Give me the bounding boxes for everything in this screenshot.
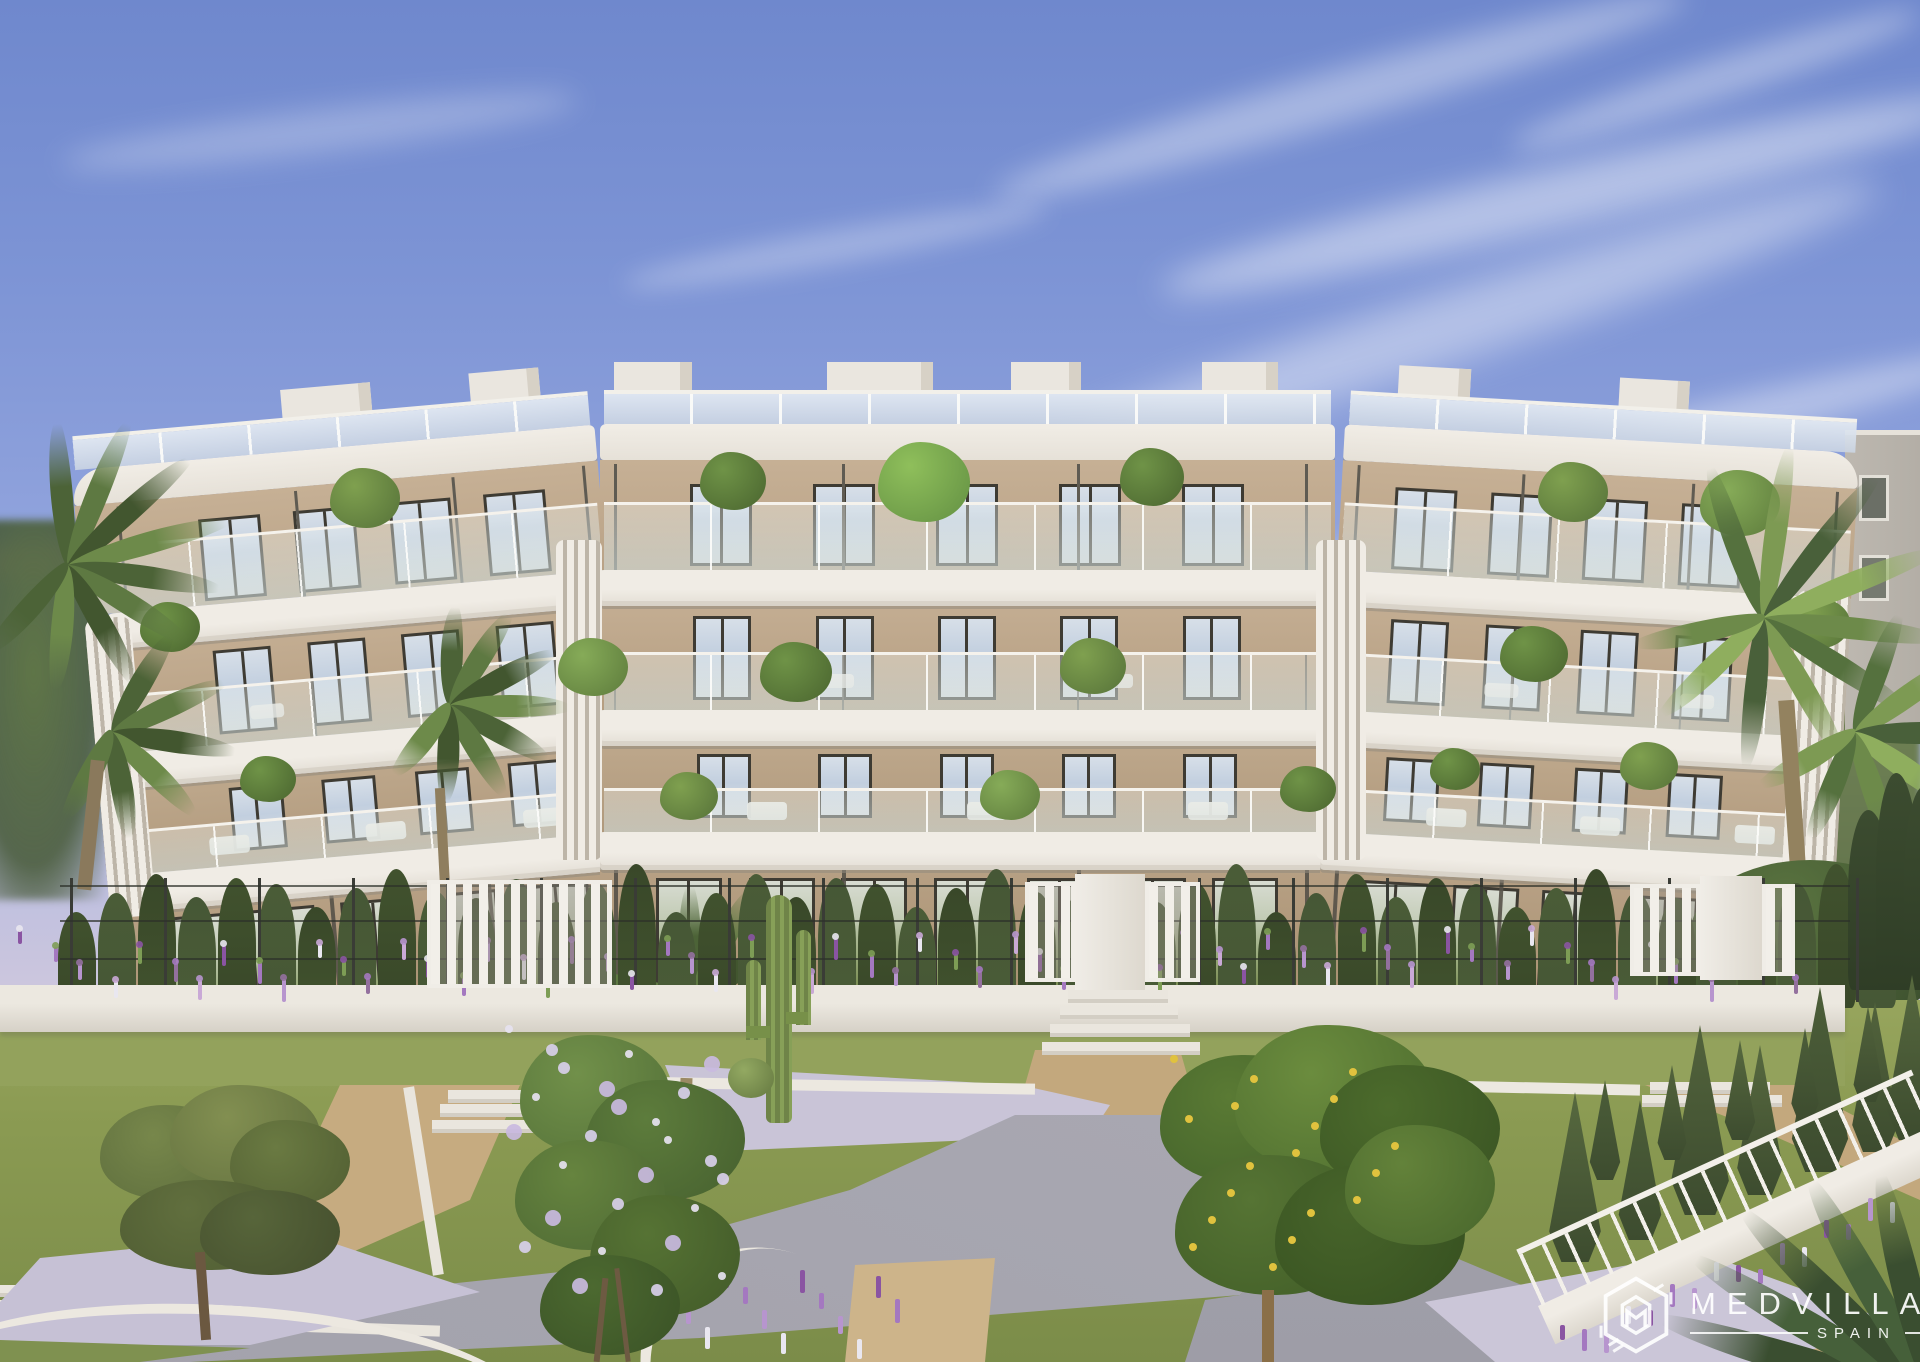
balcony-plant: [660, 772, 718, 820]
flower-cluster: [834, 938, 838, 960]
lilac-flowers: [558, 1062, 570, 1074]
lilac-flowers: [678, 1087, 690, 1099]
lavender: [705, 1327, 710, 1349]
flower-cluster: [138, 946, 142, 964]
flower-cluster: [870, 955, 874, 978]
flower-cluster: [1302, 950, 1306, 968]
lavender: [781, 1333, 786, 1354]
fence-post: [1386, 878, 1389, 1002]
lilac-flowers: [585, 1130, 597, 1142]
flower-cluster: [1408, 961, 1415, 968]
balcony-band: [600, 570, 1335, 606]
lilac-flowers: [717, 1173, 729, 1185]
lilac-flowers: [506, 1124, 522, 1140]
lavender: [819, 1293, 824, 1309]
fence-post: [728, 878, 731, 1002]
lawn: [0, 1030, 1845, 1086]
flower-cluster: [892, 967, 899, 974]
gate-steps: [1068, 990, 1168, 1003]
fence-post: [70, 878, 73, 1002]
flower-cluster: [1468, 943, 1475, 950]
louver-panel: [1316, 540, 1366, 860]
flower-cluster: [1530, 930, 1534, 946]
flower-cluster: [714, 974, 718, 992]
cloud: [59, 78, 580, 183]
lemon-fruit: [1307, 1209, 1315, 1217]
lavender: [838, 1316, 843, 1334]
flower-cluster: [1360, 927, 1367, 934]
entrance-gate: [1025, 882, 1075, 982]
flower-cluster: [978, 971, 982, 988]
flower-cluster: [748, 934, 755, 941]
lemon-tree-trunk: [1262, 1290, 1274, 1362]
lavender: [1560, 1325, 1565, 1340]
lilac-flowers: [691, 1204, 699, 1212]
fence-post: [352, 878, 355, 1002]
roof-terrace-glass: [604, 390, 1331, 424]
balcony-plant: [1538, 462, 1608, 522]
flower-cluster: [52, 942, 59, 949]
lavender: [743, 1287, 748, 1304]
lilac-flowers: [638, 1167, 654, 1183]
flower-cluster: [918, 937, 922, 952]
flower-cluster: [976, 966, 983, 973]
lilac-flowers: [705, 1155, 717, 1167]
flower-cluster: [712, 969, 719, 976]
flower-cluster: [1326, 967, 1330, 986]
flower-cluster: [1444, 926, 1451, 933]
flower-cluster: [136, 941, 143, 948]
balcony-plant: [558, 638, 628, 696]
flower-cluster: [112, 976, 119, 983]
lilac-flowers: [505, 1025, 513, 1033]
balcony-plant: [1500, 626, 1568, 682]
flower-cluster: [1014, 936, 1018, 954]
flower-cluster: [280, 974, 287, 981]
balcony-plant: [1280, 766, 1336, 812]
glass-balustrade: [604, 652, 1331, 712]
louver-panel: [556, 540, 602, 860]
flower-cluster: [894, 972, 898, 986]
lavender: [1582, 1329, 1587, 1351]
flower-cluster: [916, 932, 923, 939]
fence-post: [164, 878, 167, 1002]
flower-cluster: [1012, 931, 1019, 938]
flower-cluster: [402, 943, 406, 960]
flower-cluster: [400, 938, 407, 945]
flower-cluster: [220, 940, 227, 947]
flower-cluster: [366, 978, 370, 994]
flower-cluster: [630, 975, 634, 990]
lilac-flowers: [704, 1056, 720, 1072]
cactus-ball: [728, 1058, 774, 1098]
lavender: [857, 1339, 862, 1359]
flower-cluster: [342, 961, 346, 976]
brand-name: MEDVILLA: [1690, 1288, 1920, 1321]
flower-cluster: [222, 945, 226, 966]
gate-steps: [1042, 1042, 1200, 1055]
brand-region: SPAIN: [1817, 1325, 1896, 1342]
lavender: [800, 1270, 805, 1293]
flower-cluster: [952, 949, 959, 956]
lilac-flowers: [652, 1118, 660, 1126]
fence-post: [1292, 878, 1295, 1002]
cactus-arm: [796, 930, 811, 1025]
flower-cluster: [196, 975, 203, 982]
balcony-plant: [240, 756, 296, 802]
lavender: [895, 1299, 900, 1323]
flower-cluster: [256, 957, 263, 964]
flower-cluster: [1216, 946, 1223, 953]
lilac-flowers: [664, 1136, 672, 1144]
cactus-arm: [786, 1012, 808, 1024]
watermark-text: MEDVILLA SPAIN: [1690, 1288, 1920, 1342]
entrance-gate: [1145, 882, 1200, 982]
flower-cluster: [78, 964, 82, 980]
lemon-fruit: [1246, 1162, 1254, 1170]
lilac-flowers: [598, 1247, 606, 1255]
lemon-fruit: [1189, 1243, 1197, 1251]
gate-steps: [1050, 1024, 1190, 1037]
lemon-fruit: [1349, 1068, 1357, 1076]
lilac-flowers: [665, 1235, 681, 1251]
flower-cluster: [114, 981, 118, 998]
flower-cluster: [1614, 981, 1618, 1000]
balcony-band: [600, 832, 1335, 870]
gate-pillar: [1075, 874, 1145, 996]
lavender: [1868, 1198, 1873, 1221]
fence-rail: [60, 885, 1850, 887]
planter-wall: [0, 985, 1845, 1032]
flower-cluster: [1240, 963, 1247, 970]
flower-cluster: [688, 952, 695, 959]
flower-cluster: [1300, 945, 1307, 952]
fence-rail: [60, 920, 1850, 922]
lilac-shrub-canopy: [540, 1255, 680, 1355]
flower-cluster: [282, 979, 286, 1002]
flower-cluster: [1410, 966, 1414, 988]
lemon-fruit: [1372, 1169, 1380, 1177]
lemon-fruit: [1269, 1263, 1277, 1271]
flower-cluster: [1566, 947, 1570, 964]
flower-cluster: [172, 958, 179, 965]
olive-tree-canopy: [200, 1190, 340, 1275]
flower-cluster: [54, 947, 58, 962]
flower-cluster: [340, 956, 347, 963]
balcony-plant: [1060, 638, 1126, 694]
lilac-flowers: [519, 1241, 531, 1253]
lilac-flowers: [545, 1210, 561, 1226]
lilac-flowers: [718, 1272, 726, 1280]
balcony-plant: [878, 442, 970, 522]
lilac-flowers: [546, 1044, 558, 1056]
flower-cluster: [750, 939, 754, 958]
flower-cluster: [1264, 928, 1271, 935]
lemon-tree-canopy: [1345, 1125, 1495, 1245]
entrance-gate: [427, 880, 612, 988]
lilac-flowers: [559, 1161, 567, 1169]
lemon-fruit: [1208, 1216, 1216, 1224]
flower-cluster: [1590, 964, 1594, 982]
roof-bulkhead: [827, 362, 933, 392]
gate-pillar: [1700, 876, 1762, 980]
roof-bulkhead: [1011, 362, 1081, 392]
roof-fascia: [600, 424, 1335, 460]
balcony-plant: [760, 642, 832, 702]
lavender: [762, 1310, 767, 1329]
flower-cluster: [1794, 979, 1798, 994]
flower-cluster: [954, 954, 958, 970]
fence-post: [1010, 878, 1013, 1002]
balcony-plant: [330, 468, 400, 528]
balcony-band: [600, 710, 1335, 746]
flower-cluster: [1470, 948, 1474, 962]
flower-cluster: [868, 950, 875, 957]
balcony-plant: [700, 452, 766, 510]
lemon-fruit: [1292, 1149, 1300, 1157]
flower-cluster: [174, 963, 178, 982]
lemon-fruit: [1250, 1075, 1258, 1083]
cactus-arm: [746, 1026, 770, 1038]
roof-bulkhead: [1202, 362, 1278, 392]
lemon-fruit: [1288, 1236, 1296, 1244]
flower-cluster: [1710, 980, 1714, 1002]
flower-cluster: [1564, 942, 1571, 949]
flower-cluster: [1218, 951, 1222, 966]
fence-post: [1856, 878, 1859, 1002]
flower-cluster: [1266, 933, 1270, 950]
flower-cluster: [1362, 932, 1366, 952]
lilac-flowers: [625, 1050, 633, 1058]
flower-cluster: [1446, 931, 1450, 954]
lilac-flowers: [532, 1093, 540, 1101]
fence-post: [1480, 878, 1483, 1002]
lilac-flowers: [612, 1198, 624, 1210]
fence-post: [1574, 878, 1577, 1002]
flower-cluster: [666, 940, 670, 956]
lilac-flowers: [599, 1081, 615, 1097]
roof-bulkhead: [614, 362, 692, 392]
flower-cluster: [1242, 968, 1246, 984]
flower-cluster: [318, 944, 322, 958]
flower-cluster: [1384, 944, 1391, 951]
flower-cluster: [832, 933, 839, 940]
brand-divider-line: [1905, 1332, 1920, 1334]
flower-cluster: [18, 930, 22, 944]
balcony-plant: [1430, 748, 1480, 790]
lavender: [876, 1276, 881, 1298]
gate-steps: [1060, 1006, 1178, 1019]
lemon-fruit: [1231, 1102, 1239, 1110]
brand-divider-line: [1690, 1332, 1808, 1334]
flower-cluster: [16, 925, 23, 932]
glass-balustrade: [604, 502, 1331, 570]
flower-cluster: [76, 959, 83, 966]
lilac-flowers: [572, 1278, 588, 1294]
flower-cluster: [364, 973, 371, 980]
balcony-plant: [1120, 448, 1184, 506]
flower-cluster: [664, 935, 671, 942]
flower-cluster: [316, 939, 323, 946]
lilac-flowers: [651, 1284, 663, 1296]
watermark: MEDVILLA SPAIN: [1598, 1274, 1920, 1356]
flower-cluster: [628, 970, 635, 977]
flower-cluster: [1386, 949, 1390, 970]
lemon-fruit: [1185, 1115, 1193, 1123]
flower-cluster: [258, 962, 262, 984]
flower-cluster: [1506, 965, 1510, 980]
lilac-flowers: [611, 1099, 627, 1115]
entrance-gate: [1762, 884, 1795, 976]
flower-cluster: [198, 980, 202, 1000]
medvilla-logo-icon: [1598, 1274, 1674, 1356]
entrance-gate: [1630, 884, 1700, 976]
balcony-plant: [1620, 742, 1678, 790]
lemon-fruit: [1311, 1122, 1319, 1130]
fence-post: [822, 878, 825, 1002]
flower-cluster: [1588, 959, 1595, 966]
lemon-fruit: [1330, 1095, 1338, 1103]
flower-cluster: [1528, 925, 1535, 932]
lemon-fruit: [1353, 1196, 1361, 1204]
flower-cluster: [690, 957, 694, 974]
flower-cluster: [1612, 976, 1619, 983]
lemon-fruit: [1227, 1189, 1235, 1197]
flower-cluster: [1504, 960, 1511, 967]
fence-post: [634, 878, 637, 1002]
cloud: [620, 193, 1049, 301]
balcony-plant: [980, 770, 1040, 820]
lemon-fruit: [1170, 1055, 1178, 1063]
flower-cluster: [1324, 962, 1331, 969]
architectural-rendering: MEDVILLA SPAIN: [0, 0, 1920, 1362]
lemon-fruit: [1391, 1142, 1399, 1150]
